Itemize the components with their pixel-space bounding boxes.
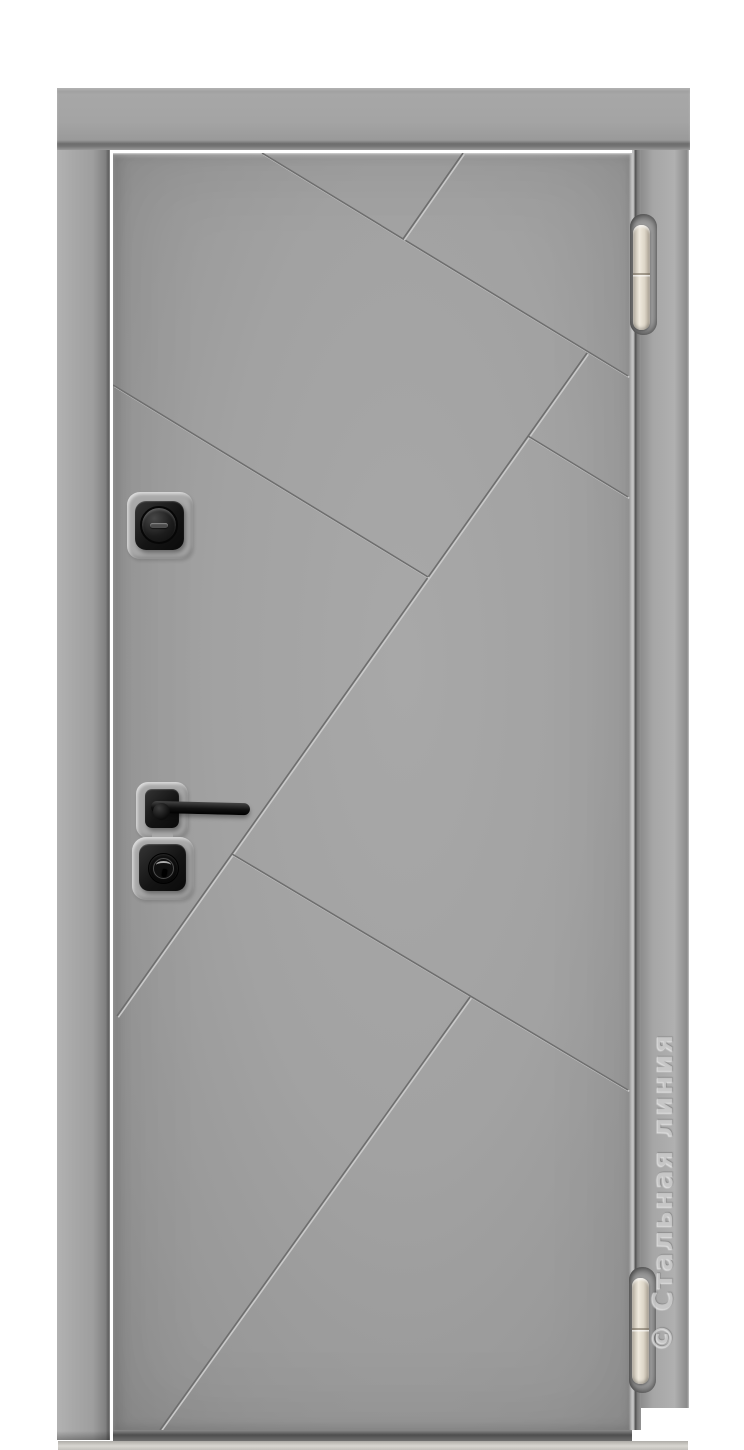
hinge-top: [630, 214, 657, 335]
thumbturn-slot-icon: [150, 523, 168, 528]
door-frame-left: [57, 150, 110, 1440]
door-leaf: [113, 153, 632, 1430]
product-photo: © Стальная линия: [0, 0, 744, 1450]
thumbturn-knob-icon: [140, 506, 178, 544]
groove-pattern: [113, 153, 632, 1430]
hinge-gap: [632, 150, 641, 1430]
watermark-text: © Стальная линия: [646, 1033, 679, 1352]
door-frame-lintel: [57, 88, 690, 150]
keyhole-icon: [148, 853, 179, 884]
hinge-seam: [633, 273, 650, 275]
hinge-top-barrel: [633, 225, 650, 330]
door-bottom-edge: [113, 1430, 632, 1441]
door: [57, 88, 690, 1450]
door-sill: [58, 1441, 688, 1450]
door-handle-elbow: [153, 803, 170, 820]
